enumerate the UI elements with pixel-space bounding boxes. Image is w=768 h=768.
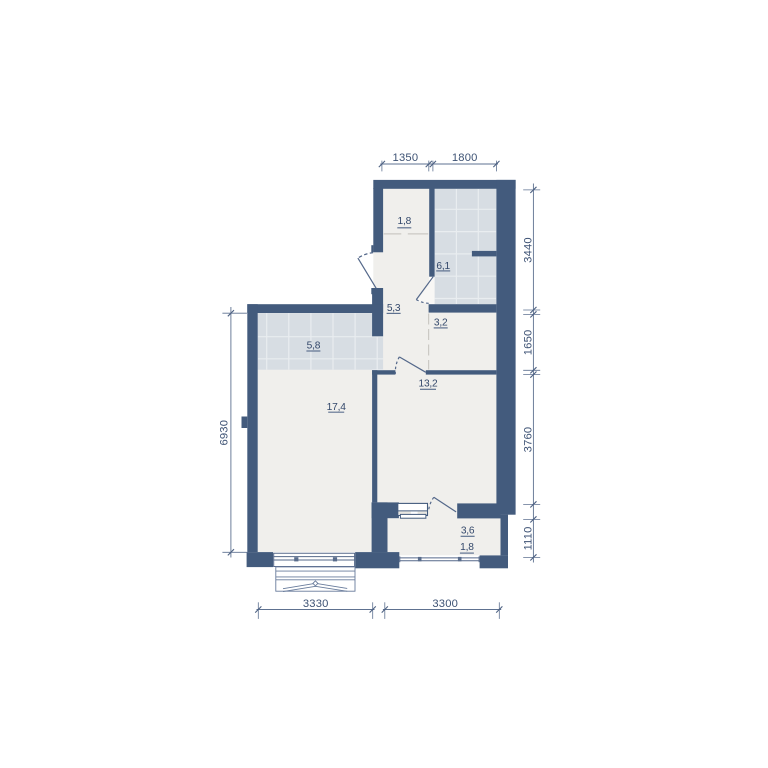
svg-text:6930: 6930 <box>218 420 230 446</box>
svg-text:3300: 3300 <box>432 598 458 610</box>
svg-text:1800: 1800 <box>452 152 478 164</box>
svg-text:3760: 3760 <box>522 427 534 453</box>
svg-text:17,4: 17,4 <box>327 402 347 413</box>
svg-text:1,8: 1,8 <box>398 216 412 227</box>
svg-text:13,2: 13,2 <box>418 379 438 390</box>
svg-text:1110: 1110 <box>522 526 534 550</box>
svg-text:5,3: 5,3 <box>387 303 401 314</box>
svg-text:5,8: 5,8 <box>307 340 321 351</box>
svg-text:3440: 3440 <box>522 237 534 263</box>
svg-text:1350: 1350 <box>393 152 419 164</box>
svg-text:1,8: 1,8 <box>460 542 474 553</box>
svg-text:3330: 3330 <box>303 598 329 610</box>
svg-text:3,6: 3,6 <box>461 526 475 537</box>
svg-text:3,2: 3,2 <box>434 317 448 328</box>
svg-text:1650: 1650 <box>522 330 534 356</box>
